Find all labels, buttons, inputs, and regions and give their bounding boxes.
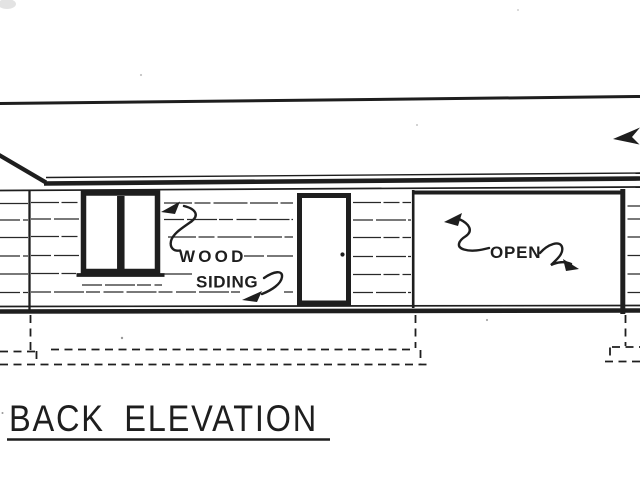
scan-speck — [121, 337, 123, 339]
scan-speck — [416, 124, 418, 126]
scan-speck — [140, 74, 142, 76]
roof-hip-edge — [0, 155, 46, 183]
scan-speck — [2, 412, 4, 414]
fascia-line — [44, 179, 640, 184]
leader-arrow-left-icon — [613, 128, 640, 145]
elevation-line-art: WOOD SIDING OPEN BACK ELEVATION — [0, 0, 640, 480]
door-frame — [300, 196, 349, 304]
scan-speck — [486, 319, 488, 321]
wood-siding-label-line1: WOOD — [179, 247, 247, 266]
scan-smudge — [0, 0, 16, 9]
door-knob — [340, 252, 344, 256]
open-label: OPEN — [490, 243, 541, 262]
wood-siding-annotation: WOOD SIDING — [161, 202, 282, 303]
foundation-dashed-path — [0, 315, 640, 365]
roof-ridge-line — [0, 97, 640, 104]
title-block: BACK ELEVATION — [7, 398, 330, 439]
wall-base-top-line — [0, 306, 640, 307]
architectural-drawing-back-elevation: WOOD SIDING OPEN BACK ELEVATION — [0, 0, 640, 480]
roof — [0, 97, 640, 184]
page-title: BACK ELEVATION — [9, 398, 318, 439]
foundation-outline — [0, 315, 640, 365]
wood-siding-label-line2: SIDING — [196, 273, 258, 292]
window — [77, 193, 165, 275]
leader-squiggle-from-siding — [262, 272, 282, 294]
scan-speck — [517, 9, 519, 11]
door — [300, 196, 349, 304]
fascia-top-line — [46, 173, 640, 178]
wall-base-line — [0, 311, 640, 312]
leader-arrowhead-down-icon — [242, 291, 262, 302]
wall-top-line — [0, 187, 640, 191]
